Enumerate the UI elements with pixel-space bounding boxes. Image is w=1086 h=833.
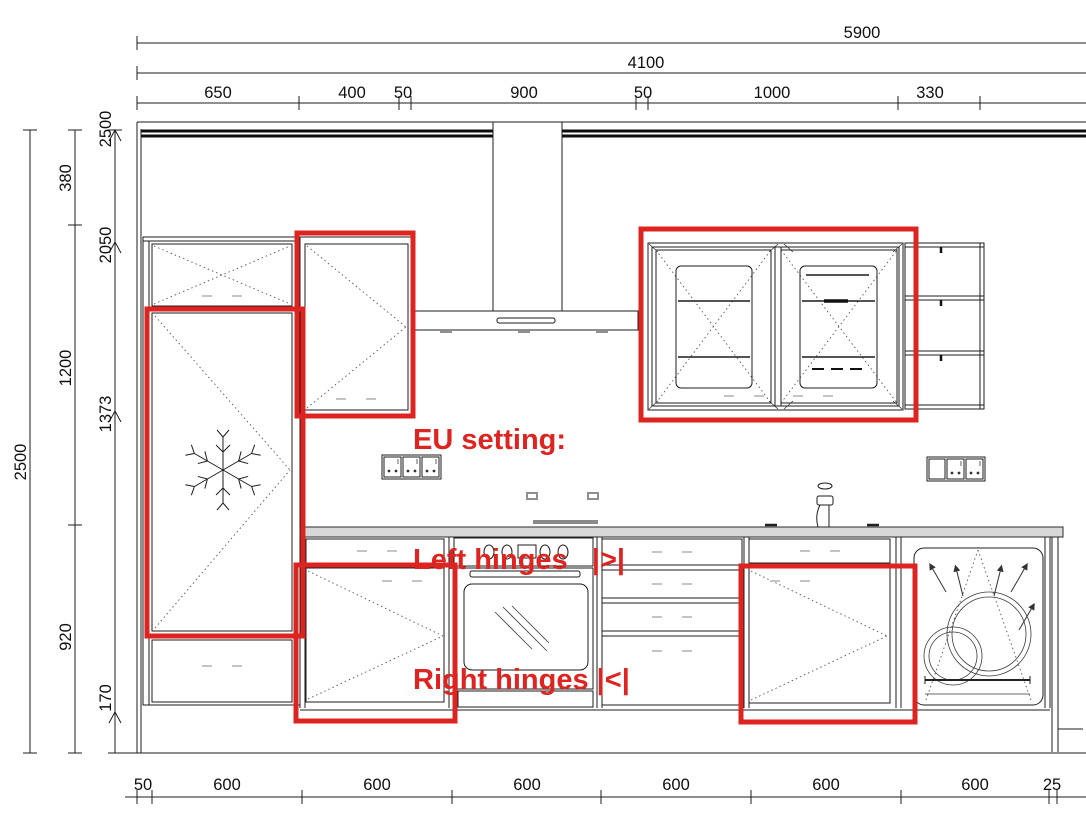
highlight-rect-sink-door [741, 566, 915, 722]
dim-top-total: 5900 [844, 24, 881, 42]
plate-icon [947, 592, 1031, 676]
wall-cabinet-pair [648, 243, 903, 410]
dim-bottom-seg-600a: 600 [213, 776, 241, 794]
socket-group-right [927, 457, 985, 481]
dim-bottom-seg-600f: 600 [961, 776, 989, 794]
tall-wall-unit-400 [300, 237, 413, 415]
dim-level-2500: 2500 [97, 111, 115, 148]
dim-left-seg-380: 380 [57, 164, 75, 192]
dim-bottom-seg-25: 25 [1043, 776, 1061, 794]
dim-bottom: 50 600 600 600 600 600 600 25 [125, 776, 1086, 804]
sink-rail [749, 539, 890, 563]
dim-level-170: 170 [97, 684, 115, 712]
dim-bottom-seg-600e: 600 [812, 776, 840, 794]
dishwasher-unit [914, 548, 1043, 705]
annotation-line-1: EU setting: [413, 420, 630, 460]
dim-bottom-seg-50: 50 [134, 776, 152, 794]
dim-top-seg-900: 900 [510, 84, 538, 102]
dim-bottom-seg-600b: 600 [363, 776, 391, 794]
dim-bottom-seg-600d: 600 [662, 776, 690, 794]
sink-door [749, 568, 890, 703]
socket-icon [966, 459, 983, 479]
dim-level-2050: 2050 [97, 227, 115, 264]
dim-bottom-seg-600c: 600 [513, 776, 541, 794]
dim-top-run: 4100 [628, 54, 665, 72]
hood-chimney [493, 122, 562, 312]
annotation-line-3: Right hinges |<| [413, 660, 630, 700]
dim-left-total: 2500 [12, 444, 30, 481]
dim-top-seg-1000: 1000 [754, 84, 791, 102]
dishwasher-front [914, 548, 1043, 705]
dim-top-seg-650: 650 [204, 84, 232, 102]
dim-top: 5900 4100 650 400 50 900 50 1000 330 [137, 24, 1086, 110]
dim-top-seg-50b: 50 [634, 84, 652, 102]
socket-icon [384, 457, 401, 477]
cooker-hood [415, 122, 638, 332]
dim-top-seg-50a: 50 [394, 84, 412, 102]
socket-icon [947, 459, 964, 479]
dim-top-seg-400: 400 [338, 84, 366, 102]
annotation-box: EU setting: Left hinges |>| Right hinges… [413, 340, 630, 740]
dim-top-seg-330: 330 [916, 84, 944, 102]
dim-left-seg-1200: 1200 [57, 350, 75, 387]
dim-left: 2500 380 1200 920 2500 2050 1373 170 [12, 111, 122, 753]
hood-canopy [415, 311, 638, 330]
annotation-line-2: Left hinges |>| [413, 540, 630, 580]
blank-plate [929, 459, 945, 479]
tap-icon [817, 483, 833, 527]
dim-left-seg-920: 920 [57, 623, 75, 651]
kitchen-elevation-screenshot: 5900 4100 650 400 50 900 50 1000 330 250… [0, 0, 1086, 833]
dim-level-1373: 1373 [97, 396, 115, 433]
